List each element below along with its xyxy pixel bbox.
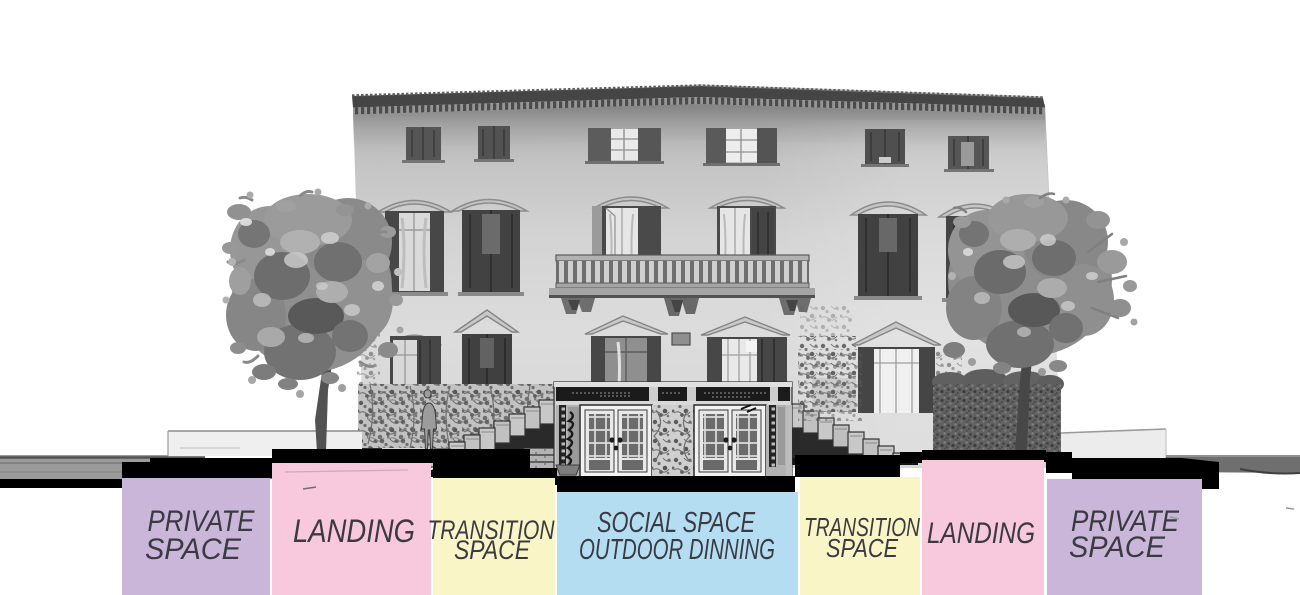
svg-text:LANDING: LANDING [927,517,1035,550]
svg-text:OUTDOOR DINNING: OUTDOOR DINNING [579,534,775,566]
svg-text:SPACE: SPACE [454,535,531,565]
svg-text:SPACE: SPACE [145,533,242,566]
svg-text:LANDING: LANDING [293,513,415,549]
svg-text:SPACE: SPACE [1069,531,1166,564]
svg-text:SPACE: SPACE [826,533,899,563]
